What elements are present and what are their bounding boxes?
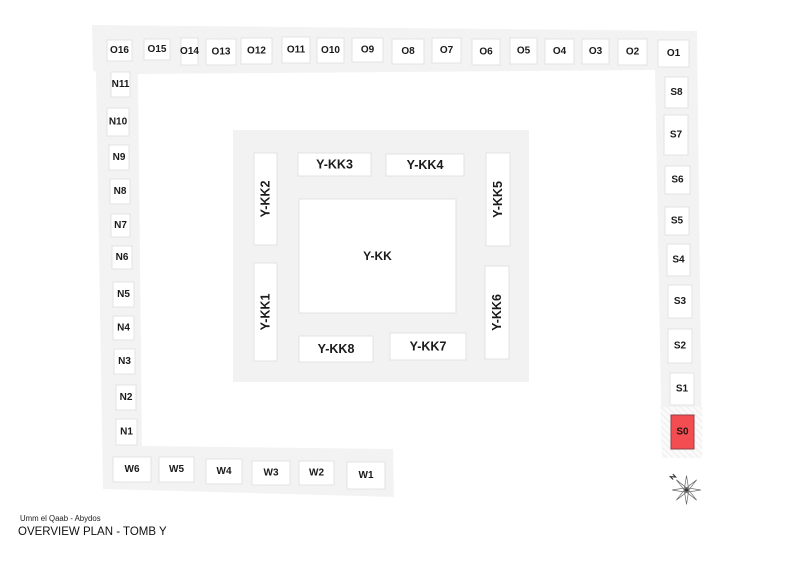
svg-text:Y-KK5: Y-KK5 [491,181,505,218]
svg-text:N4: N4 [117,323,130,334]
svg-text:S8: S8 [670,87,683,98]
svg-text:O11: O11 [287,45,306,56]
svg-text:Y-KK7: Y-KK7 [410,340,447,354]
svg-text:W3: W3 [264,468,279,479]
svg-text:N6: N6 [116,252,129,263]
svg-text:W2: W2 [309,468,324,479]
svg-text:O9: O9 [361,45,375,56]
svg-text:S4: S4 [672,255,685,266]
svg-text:Y-KK1: Y-KK1 [259,294,273,331]
svg-text:S2: S2 [674,341,687,352]
svg-text:W6: W6 [125,464,140,475]
svg-text:O3: O3 [589,46,603,57]
svg-text:N1: N1 [120,427,133,438]
svg-text:OVERVIEW PLAN - TOMB Y: OVERVIEW PLAN - TOMB Y [18,526,167,538]
svg-text:N7: N7 [114,220,127,231]
svg-text:N9: N9 [113,152,126,163]
svg-text:Y-KK6: Y-KK6 [490,294,504,331]
svg-text:S0: S0 [676,427,689,438]
svg-text:Y-KK: Y-KK [363,249,392,263]
svg-text:W5: W5 [169,464,184,475]
svg-text:S5: S5 [671,216,684,227]
svg-text:O5: O5 [517,46,531,57]
svg-text:O7: O7 [440,45,454,56]
svg-text:S1: S1 [676,384,689,395]
svg-text:N2: N2 [120,392,133,403]
svg-text:N5: N5 [117,289,130,300]
svg-text:S6: S6 [671,175,684,186]
svg-text:N8: N8 [114,186,127,197]
svg-text:O4: O4 [553,46,567,57]
svg-text:Y-KK3: Y-KK3 [316,158,353,172]
svg-text:W1: W1 [359,470,374,481]
svg-text:O6: O6 [479,47,493,58]
svg-text:O1: O1 [667,48,681,59]
svg-text:O13: O13 [212,47,231,58]
svg-text:S3: S3 [674,296,687,307]
svg-text:Umm el Qaab - Abydos: Umm el Qaab - Abydos [20,514,101,523]
svg-text:O8: O8 [401,46,415,57]
svg-text:O14: O14 [180,46,199,57]
svg-text:N10: N10 [109,117,128,128]
svg-text:O2: O2 [626,47,640,58]
svg-text:W4: W4 [217,466,232,477]
svg-text:Y-KK4: Y-KK4 [407,158,444,172]
svg-text:Y-KK2: Y-KK2 [259,181,273,218]
svg-text:O10: O10 [321,45,340,56]
svg-text:Y-KK8: Y-KK8 [318,342,355,356]
svg-text:O12: O12 [247,46,266,57]
svg-text:S7: S7 [670,130,683,141]
svg-text:N3: N3 [118,356,131,367]
svg-text:O16: O16 [110,45,129,56]
svg-text:N11: N11 [112,79,130,90]
svg-text:O15: O15 [148,44,167,55]
